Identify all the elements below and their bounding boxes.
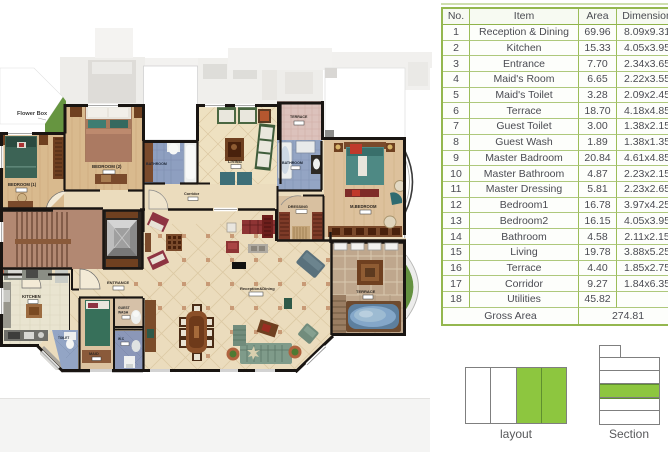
svg-text:BEDROOM (1): BEDROOM (1) <box>8 182 37 187</box>
svg-text:KITCHEN: KITCHEN <box>22 294 41 299</box>
svg-text:DRESSING: DRESSING <box>288 205 308 209</box>
svg-text:ENTRANCE: ENTRANCE <box>107 280 130 285</box>
svg-text:W.C: W.C <box>118 337 125 341</box>
svg-text:BATHROOM: BATHROOM <box>282 161 303 165</box>
svg-text:Flower Box: Flower Box <box>17 111 48 117</box>
svg-text:MAID: MAID <box>89 352 99 356</box>
svg-text:Corridor: Corridor <box>184 192 200 196</box>
svg-text:GUEST: GUEST <box>118 306 131 310</box>
svg-text:Reception&Dining: Reception&Dining <box>240 286 275 291</box>
svg-text:BATHROOM: BATHROOM <box>146 162 167 166</box>
svg-text:BEDROOM (2): BEDROOM (2) <box>92 164 122 169</box>
svg-text:TERRACE: TERRACE <box>290 115 308 119</box>
svg-text:TOILET: TOILET <box>58 336 69 340</box>
svg-text:M.BEDROOM: M.BEDROOM <box>350 204 377 209</box>
svg-text:WASH: WASH <box>118 311 129 315</box>
svg-text:TERRACE: TERRACE <box>356 289 376 294</box>
svg-text:LIVING: LIVING <box>228 159 242 164</box>
